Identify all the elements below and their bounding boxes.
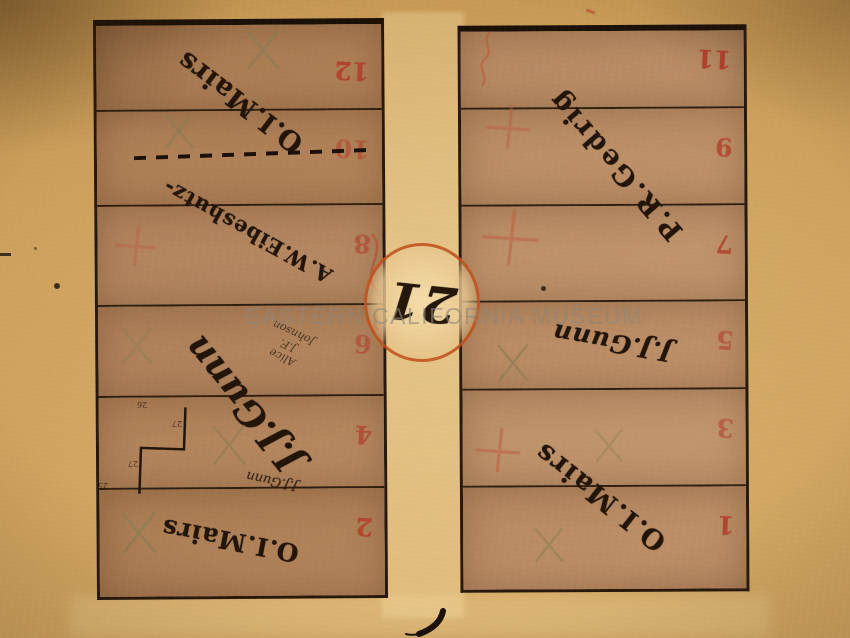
pencil-x-mark [588, 426, 628, 466]
stepped-survey-line [93, 396, 196, 499]
red-cross-mark [115, 225, 155, 265]
museum-watermark: EASTERN CALIFORNIA MUSEUM [245, 303, 605, 330]
red-cross-mark [482, 209, 538, 265]
pencil-x-mark [203, 420, 253, 470]
measurement-label: 25 [98, 481, 109, 491]
ink-speck [34, 247, 37, 250]
lot-12-number: 12 [334, 57, 370, 84]
pencil-x-mark [527, 524, 569, 566]
ink-stroke-mark [405, 608, 450, 638]
lot-11-number: 11 [696, 46, 732, 73]
red-tick-mark [586, 9, 595, 15]
red-cross-mark [486, 105, 530, 149]
measurement-label: 27 [128, 459, 139, 469]
measurement-label: 27 [172, 419, 183, 429]
red-scribble [470, 30, 506, 90]
lot-6-number: 6 [353, 331, 372, 357]
red-cross-mark [476, 428, 520, 472]
edge-line-fragment [0, 253, 11, 256]
lot-3-number: 3 [716, 415, 735, 441]
pencil-x-mark [156, 109, 200, 153]
ink-blot [54, 283, 60, 289]
lot-4-number: 4 [354, 422, 373, 448]
plat-map-photo: 12 10 8 6 4 2 11 9 7 5 3 [0, 0, 850, 638]
lot-5-number: 5 [715, 327, 734, 353]
measurement-label: 26 [137, 400, 148, 410]
ink-dot [541, 286, 546, 291]
pencil-x-mark [112, 507, 164, 559]
pencil-x-mark [113, 323, 159, 369]
lot-7-number: 7 [715, 231, 734, 257]
lot-1-number: 1 [716, 512, 735, 538]
lot-2-number: 2 [355, 514, 374, 540]
lot-9-number: 9 [714, 134, 733, 160]
pencil-x-mark [238, 26, 286, 74]
pencil-x-mark [489, 340, 535, 386]
